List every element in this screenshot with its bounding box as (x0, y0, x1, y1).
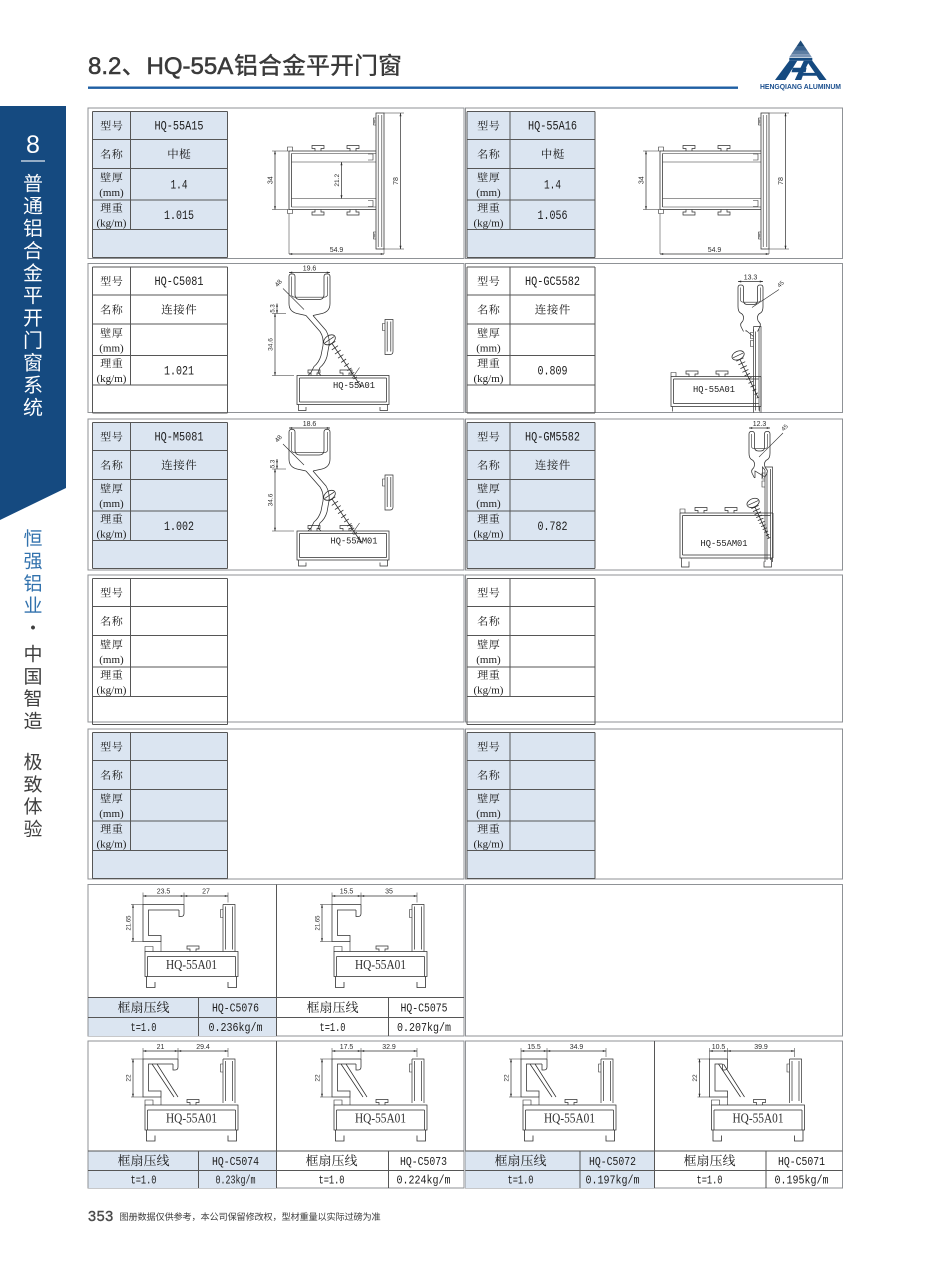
svg-text:54.9: 54.9 (330, 247, 344, 254)
svg-text:(kg/m): (kg/m) (97, 217, 127, 229)
svg-text:22: 22 (692, 1074, 699, 1082)
svg-text:HQ-55A01: HQ-55A01 (355, 1111, 406, 1126)
svg-text:15.5: 15.5 (340, 889, 354, 896)
svg-text:353: 353 (88, 1209, 114, 1225)
svg-text:0.782: 0.782 (538, 520, 568, 534)
svg-text:HQ-55A16: HQ-55A16 (528, 120, 577, 134)
svg-text:HQ-C5071: HQ-C5071 (778, 1155, 825, 1169)
svg-text:(mm): (mm) (99, 498, 124, 510)
svg-text:t=1.0: t=1.0 (319, 1173, 345, 1187)
svg-text:t=1.0: t=1.0 (508, 1173, 534, 1187)
svg-text:(mm): (mm) (476, 808, 501, 820)
svg-text:(mm): (mm) (99, 808, 124, 820)
svg-text:54.9: 54.9 (708, 247, 722, 254)
svg-text:(kg/m): (kg/m) (474, 373, 504, 385)
svg-text:(kg/m): (kg/m) (97, 684, 127, 696)
svg-text:HQ-C5074: HQ-C5074 (212, 1155, 259, 1169)
svg-text:t=1.0: t=1.0 (320, 1021, 346, 1035)
svg-text:HQ-M5081: HQ-M5081 (155, 431, 204, 445)
svg-text:21: 21 (157, 1044, 165, 1051)
svg-text:HQ-55A: HQ-55A (147, 53, 234, 80)
svg-text:1.056: 1.056 (538, 209, 568, 223)
svg-text:HQ-GC5582: HQ-GC5582 (525, 275, 580, 289)
svg-text:HQ-C5072: HQ-C5072 (589, 1155, 636, 1169)
svg-text:HQ-55A15: HQ-55A15 (155, 120, 204, 134)
svg-text:21.65: 21.65 (127, 915, 133, 931)
svg-text:22: 22 (315, 1074, 322, 1082)
svg-text:78: 78 (393, 177, 400, 185)
svg-text:(mm): (mm) (99, 187, 124, 199)
svg-text:34.6: 34.6 (268, 493, 275, 506)
svg-text:HENGQIANG ALUMINUM: HENGQIANG ALUMINUM (760, 82, 841, 91)
svg-text:(kg/m): (kg/m) (97, 838, 127, 850)
svg-text:(kg/m): (kg/m) (97, 528, 127, 540)
svg-text:HQ-55A01: HQ-55A01 (355, 957, 406, 972)
svg-text:35: 35 (385, 889, 393, 896)
svg-text:HQ-C5081: HQ-C5081 (155, 275, 204, 289)
svg-text:(kg/m): (kg/m) (474, 838, 504, 850)
svg-text:1.021: 1.021 (164, 364, 194, 378)
svg-text:19.6: 19.6 (303, 266, 317, 273)
svg-text:HQ-C5073: HQ-C5073 (400, 1155, 447, 1169)
svg-text:5.3: 5.3 (271, 459, 277, 468)
svg-text:(kg/m): (kg/m) (474, 217, 504, 229)
svg-text:0.236kg/m: 0.236kg/m (209, 1021, 263, 1035)
svg-text:(mm): (mm) (476, 342, 501, 354)
svg-text:(kg/m): (kg/m) (474, 684, 504, 696)
svg-text:HQ-55AM01: HQ-55AM01 (331, 537, 378, 547)
svg-text:27: 27 (202, 889, 210, 896)
svg-text:0.809: 0.809 (538, 364, 568, 378)
svg-text:21.65: 21.65 (316, 915, 322, 931)
svg-text:18.6: 18.6 (303, 421, 317, 428)
svg-text:(mm): (mm) (99, 654, 124, 666)
svg-text:0.224kg/m: 0.224kg/m (397, 1173, 451, 1187)
svg-text:HQ-55A01: HQ-55A01 (733, 1111, 784, 1126)
svg-text:HQ-GM5582: HQ-GM5582 (525, 431, 580, 445)
svg-text:29.4: 29.4 (196, 1044, 210, 1051)
svg-text:34.9: 34.9 (570, 1044, 584, 1051)
svg-text:0.197kg/m: 0.197kg/m (586, 1173, 640, 1187)
svg-text:HQ-55A01: HQ-55A01 (544, 1111, 595, 1126)
svg-text:21.2: 21.2 (334, 174, 341, 187)
svg-text:13.3: 13.3 (744, 275, 758, 282)
svg-text:t=1.0: t=1.0 (131, 1173, 157, 1187)
svg-text:0.195kg/m: 0.195kg/m (775, 1173, 829, 1187)
svg-text:HQ-55A01: HQ-55A01 (333, 381, 375, 391)
svg-text:32.9: 32.9 (382, 1044, 396, 1051)
svg-text:HQ-55A01: HQ-55A01 (166, 957, 217, 972)
svg-text:t=1.0: t=1.0 (697, 1173, 723, 1187)
svg-text:(kg/m): (kg/m) (474, 528, 504, 540)
svg-text:(mm): (mm) (476, 498, 501, 510)
svg-text:(kg/m): (kg/m) (97, 373, 127, 385)
svg-text:HQ-C5075: HQ-C5075 (401, 1002, 448, 1016)
svg-text:22: 22 (504, 1074, 511, 1082)
svg-text:1.002: 1.002 (164, 520, 194, 534)
svg-text:t=1.0: t=1.0 (131, 1021, 157, 1035)
svg-text:8: 8 (26, 131, 40, 159)
svg-text:(mm): (mm) (476, 654, 501, 666)
svg-text:HQ-C5076: HQ-C5076 (212, 1002, 259, 1016)
svg-text:78: 78 (778, 177, 785, 185)
svg-text:23.5: 23.5 (157, 889, 171, 896)
svg-text:1.4: 1.4 (544, 178, 561, 192)
svg-text:HQ-55A01: HQ-55A01 (693, 385, 735, 395)
svg-text:0.207kg/m: 0.207kg/m (397, 1021, 451, 1035)
svg-text:5.3: 5.3 (271, 304, 277, 313)
svg-text:34.6: 34.6 (268, 338, 275, 351)
svg-text:(mm): (mm) (99, 342, 124, 354)
svg-text:HQ-55A01: HQ-55A01 (166, 1111, 217, 1126)
svg-text:15.5: 15.5 (527, 1044, 541, 1051)
svg-text:10.5: 10.5 (712, 1044, 726, 1051)
svg-text:34: 34 (268, 176, 275, 184)
svg-text:12.3: 12.3 (753, 421, 767, 428)
svg-text:22: 22 (126, 1074, 133, 1082)
svg-text:(mm): (mm) (476, 187, 501, 199)
svg-text:HQ-55AM01: HQ-55AM01 (701, 539, 748, 549)
svg-text:39.9: 39.9 (754, 1044, 768, 1051)
svg-text:17.5: 17.5 (340, 1044, 354, 1051)
svg-text:8.2: 8.2 (88, 53, 121, 80)
svg-text:34: 34 (639, 176, 646, 184)
svg-text:1.015: 1.015 (164, 209, 194, 223)
svg-text:1.4: 1.4 (171, 178, 188, 192)
svg-text:0.23kg/m: 0.23kg/m (216, 1173, 256, 1187)
